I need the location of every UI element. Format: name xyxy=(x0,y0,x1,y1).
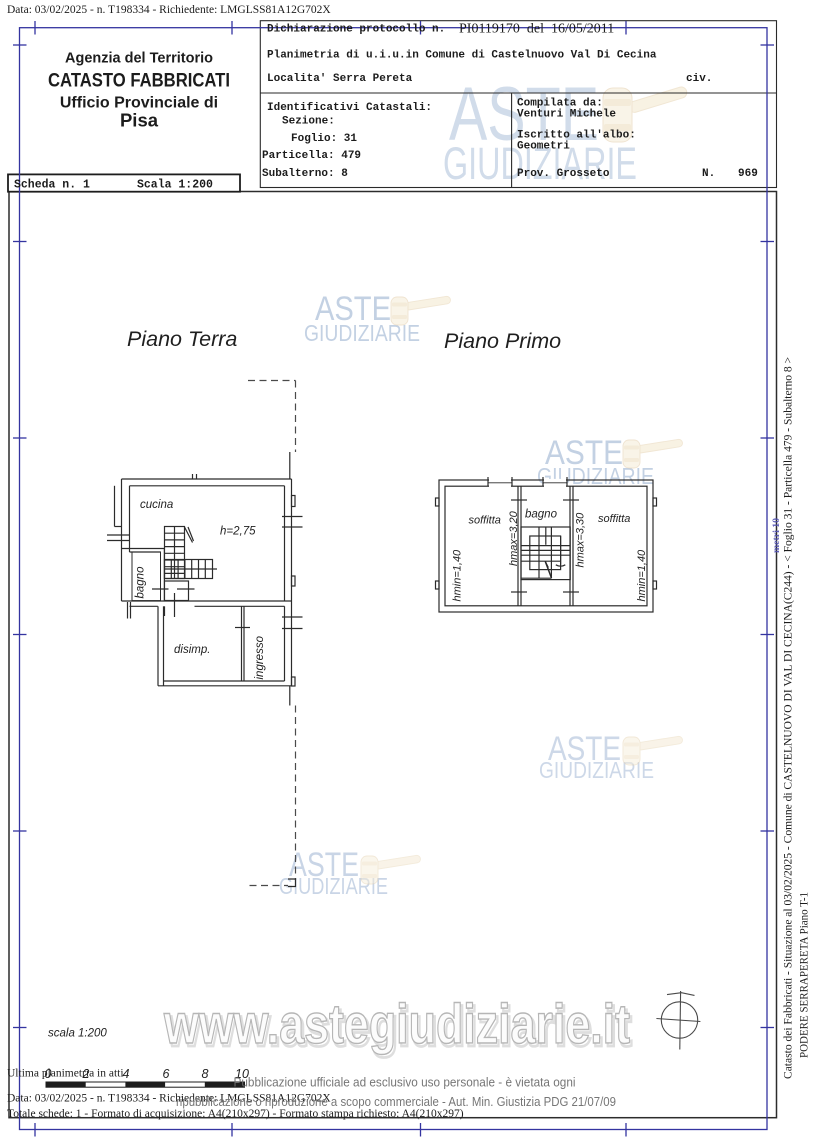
svg-text:PI0119170 del 16/05/2011: PI0119170 del 16/05/2011 xyxy=(459,22,614,37)
svg-text:969: 969 xyxy=(738,168,758,180)
svg-text:N.: N. xyxy=(702,168,715,180)
svg-text:Piano Primo: Piano Primo xyxy=(444,329,561,353)
svg-text:www.astegiudiziarie.it: www.astegiudiziarie.it xyxy=(163,992,630,1055)
svg-text:hmax=3,30: hmax=3,30 xyxy=(575,512,587,568)
svg-text:Piano Terra: Piano Terra xyxy=(127,327,237,351)
svg-text:Venturi Michele: Venturi Michele xyxy=(517,109,616,121)
svg-text:8: 8 xyxy=(202,1067,209,1081)
svg-text:Totale schede: 1 - Formato di: Totale schede: 1 - Formato di acquisizio… xyxy=(7,1108,464,1120)
svg-text:bagno: bagno xyxy=(525,509,558,521)
svg-text:Particella: 479: Particella: 479 xyxy=(262,150,361,162)
svg-text:Ultima planimetria in atti: Ultima planimetria in atti xyxy=(7,1068,124,1080)
svg-text:Dichiarazione protocollo n.: Dichiarazione protocollo n. xyxy=(267,24,445,36)
svg-text:Pubblicazione ufficiale ad esc: Pubblicazione ufficiale ad esclusivo uso… xyxy=(234,1076,576,1090)
svg-text:Localita' Serra Pereta: Localita' Serra Pereta xyxy=(267,73,413,85)
svg-text:h=2,75: h=2,75 xyxy=(220,526,256,538)
svg-text:Scheda n. 1: Scheda n. 1 xyxy=(14,179,90,192)
svg-text:PODERE SERRAPERETA Piano T-1: PODERE SERRAPERETA Piano T-1 xyxy=(797,892,811,1058)
svg-text:Catasto dei Fabbricati - Situa: Catasto dei Fabbricati - Situazione al 0… xyxy=(783,357,795,1079)
svg-text:Planimetria di u.i.u.in Comune: Planimetria di u.i.u.in Comune di Castel… xyxy=(267,50,657,62)
svg-text:metri 10: metri 10 xyxy=(771,517,781,553)
svg-text:ingresso: ingresso xyxy=(254,635,266,679)
svg-text:Agenzia del Territorio: Agenzia del Territorio xyxy=(65,51,213,67)
svg-text:disimp.: disimp. xyxy=(174,644,210,656)
svg-text:civ.: civ. xyxy=(686,73,712,85)
svg-text:ripubblicazione o riproduzione: ripubblicazione o riproduzione a scopo c… xyxy=(176,1095,616,1109)
svg-text:Foglio: 31: Foglio: 31 xyxy=(291,133,357,145)
svg-text:hmin=1,40: hmin=1,40 xyxy=(636,549,648,602)
svg-text:Data: 03/02/2025 - n. T198334: Data: 03/02/2025 - n. T198334 - Richiede… xyxy=(7,4,331,16)
svg-text:bagno: bagno xyxy=(135,566,147,599)
svg-text:soffitta: soffitta xyxy=(469,515,501,527)
svg-text:hmin=1,40: hmin=1,40 xyxy=(452,549,464,602)
svg-text:CATASTO FABBRICATI: CATASTO FABBRICATI xyxy=(48,71,230,92)
svg-text:scala 1:200: scala 1:200 xyxy=(48,1028,107,1040)
svg-text:Sezione:: Sezione: xyxy=(282,116,335,128)
svg-text:cucina: cucina xyxy=(140,499,173,511)
svg-text:6: 6 xyxy=(163,1067,170,1081)
svg-text:Identificativi Catastali:: Identificativi Catastali: xyxy=(267,102,432,114)
svg-text:Geometri: Geometri xyxy=(517,141,570,153)
svg-text:Prov. Grosseto: Prov. Grosseto xyxy=(517,168,610,180)
svg-text:Subalterno: 8: Subalterno: 8 xyxy=(262,168,348,180)
svg-text:soffitta: soffitta xyxy=(598,513,630,525)
svg-text:hmax=3,20: hmax=3,20 xyxy=(508,510,520,566)
svg-text:Pisa: Pisa xyxy=(120,110,159,131)
svg-text:Scala 1:200: Scala 1:200 xyxy=(137,179,213,192)
